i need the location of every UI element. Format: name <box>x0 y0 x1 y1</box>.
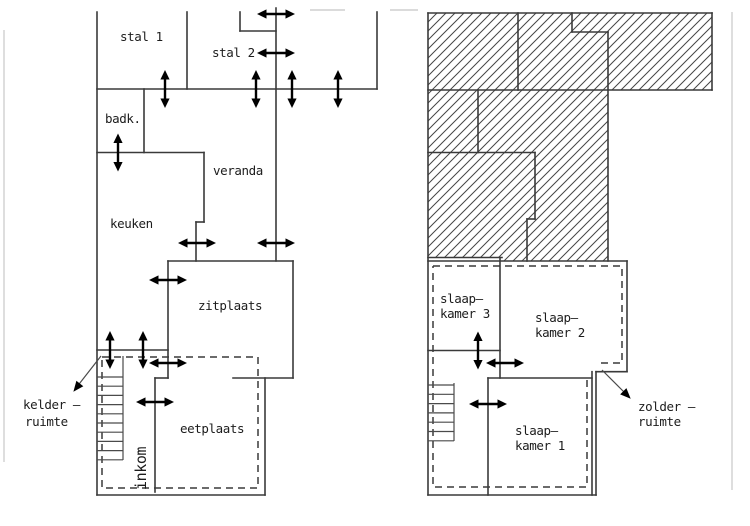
ground-floor-opening-arrows <box>105 9 342 406</box>
upper-floor-opening-arrows <box>469 332 524 409</box>
floor-plan-page: stal 1 stal 2 badk. veranda keuken zitpl… <box>0 0 750 526</box>
room-label-slaapkamer-1-line2: kamer 1 <box>515 438 565 453</box>
floor-plan-drawing: stal 1 stal 2 badk. veranda keuken zitpl… <box>0 0 750 526</box>
room-label-keuken: keuken <box>110 216 153 231</box>
staircase-down <box>97 356 123 460</box>
room-label-slaapkamer-3-line1: slaap– <box>440 291 484 306</box>
room-label-inkom: inkom <box>132 446 150 490</box>
room-label-badkamer: badk. <box>105 111 141 126</box>
upper-floor-plan: slaap– kamer 3 slaap– kamer 2 slaap– kam… <box>428 13 712 495</box>
kelder-label-line1: kelder – <box>23 397 81 412</box>
room-label-slaapkamer-3-line2: kamer 3 <box>440 306 490 321</box>
staircase-up <box>428 383 454 441</box>
room-label-eetplaats: eetplaats <box>180 421 244 436</box>
room-label-slaapkamer-2-line1: slaap– <box>535 310 579 325</box>
zolder-label-line2: ruimte <box>638 414 681 429</box>
ground-floor-plan: stal 1 stal 2 badk. veranda keuken zitpl… <box>23 8 377 495</box>
roof-hatch <box>428 13 712 261</box>
zolder-label-line1: zolder – <box>638 399 696 414</box>
callout-leader-line <box>602 370 627 395</box>
double-arrow-icon <box>486 358 524 367</box>
room-label-slaapkamer-1-line1: slaap– <box>515 423 559 438</box>
zolder-callout: zolder – ruimte <box>602 370 696 429</box>
room-label-veranda: veranda <box>213 163 263 178</box>
kelder-label-line2: ruimte <box>25 414 68 429</box>
double-arrow-icon <box>178 238 216 247</box>
room-label-stal-2: stal 2 <box>212 45 255 60</box>
room-label-stal-1: stal 1 <box>120 29 163 44</box>
callout-arrow-icon <box>70 381 83 395</box>
room-label-slaapkamer-2-line2: kamer 2 <box>535 325 585 340</box>
kelder-callout: kelder – ruimte <box>23 356 101 429</box>
room-label-zitplaats: zitplaats <box>198 298 262 313</box>
